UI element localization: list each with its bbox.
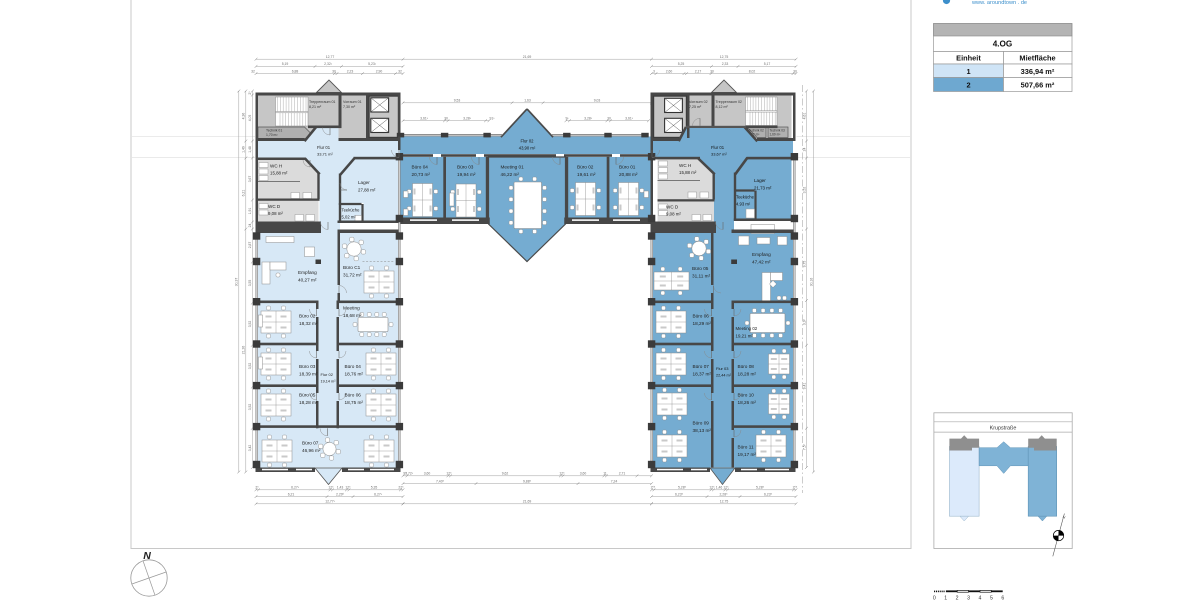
- svg-text:336,94 m²: 336,94 m²: [1021, 67, 1055, 76]
- svg-text:3,42: 3,42: [248, 445, 252, 452]
- svg-text:3,61¹: 3,61¹: [420, 117, 429, 121]
- svg-text:Flur 03: Flur 03: [716, 366, 729, 371]
- svg-text:5: 5: [990, 596, 993, 600]
- svg-text:43,90 m²: 43,90 m²: [519, 146, 536, 151]
- svg-text:2⁰⁵: 2⁰⁵: [793, 486, 798, 490]
- svg-text:4,05: 4,05: [248, 115, 252, 122]
- svg-text:2,28⁵: 2,28⁵: [719, 492, 728, 496]
- svg-text:20,88 m²: 20,88 m²: [619, 172, 638, 177]
- svg-text:12⁵: 12⁵: [345, 486, 351, 490]
- svg-text:5,23¹: 5,23¹: [368, 62, 377, 66]
- svg-text:4.OG: 4.OG: [993, 40, 1013, 49]
- svg-text:18,26 m²: 18,26 m²: [738, 400, 757, 405]
- svg-text:5,25: 5,25: [678, 62, 685, 66]
- svg-text:7,40⁵: 7,40⁵: [436, 479, 445, 483]
- svg-text:Flur 02: Flur 02: [520, 139, 534, 144]
- svg-text:30: 30: [607, 117, 611, 121]
- svg-text:30: 30: [332, 69, 336, 73]
- svg-text:3: 3: [653, 69, 655, 73]
- svg-text:21,73 m²: 21,73 m²: [754, 186, 772, 191]
- svg-text:9,03: 9,03: [594, 99, 601, 103]
- svg-text:33,67 m²: 33,67 m²: [711, 152, 727, 157]
- svg-text:18,39 m²: 18,39 m²: [299, 372, 318, 377]
- svg-text:38,13 m²: 38,13 m²: [693, 428, 712, 433]
- svg-text:2,90: 2,90: [376, 69, 383, 73]
- svg-text:WC H: WC H: [679, 163, 691, 168]
- svg-text:2⁵: 2⁵: [248, 91, 252, 95]
- svg-text:9,62: 9,62: [502, 472, 509, 476]
- svg-text:4: 4: [979, 596, 982, 600]
- svg-text:3,52: 3,52: [248, 363, 252, 370]
- svg-text:21,69: 21,69: [523, 55, 532, 59]
- svg-text:Büro 07: Büro 07: [693, 364, 710, 369]
- svg-text:6,27¹: 6,27¹: [291, 486, 300, 490]
- svg-text:3,67: 3,67: [248, 176, 252, 183]
- svg-text:6,88: 6,88: [292, 69, 299, 73]
- svg-text:46,96 m²: 46,96 m²: [302, 448, 321, 453]
- svg-text:30,37: 30,37: [235, 278, 239, 287]
- svg-text:5,02 m²: 5,02 m²: [342, 215, 357, 220]
- svg-text:3,60: 3,60: [424, 472, 431, 476]
- svg-text:19,14 m²: 19,14 m²: [321, 380, 337, 384]
- svg-text:32: 32: [251, 69, 255, 73]
- svg-text:5,19: 5,19: [282, 62, 289, 66]
- svg-text:2,33: 2,33: [722, 62, 729, 66]
- svg-text:www. aroundtown . de: www. aroundtown . de: [971, 0, 1027, 6]
- svg-text:9,53: 9,53: [454, 99, 461, 103]
- svg-text:47,42 m²: 47,42 m²: [752, 260, 771, 265]
- svg-text:19,21 m²: 19,21 m²: [736, 334, 754, 339]
- svg-text:33,71 m²: 33,71 m²: [317, 152, 333, 157]
- svg-text:2⁵: 2⁵: [255, 486, 259, 490]
- svg-text:40,27 m²: 40,27 m²: [298, 278, 317, 283]
- svg-text:22,44 m²: 22,44 m²: [716, 374, 732, 378]
- svg-text:12⁵: 12⁵: [559, 472, 565, 476]
- svg-text:12,75: 12,75: [720, 500, 729, 504]
- svg-text:22⁵: 22⁵: [398, 486, 404, 490]
- svg-text:Büro 11: Büro 11: [738, 445, 754, 450]
- svg-text:18,28 m²: 18,28 m²: [299, 400, 318, 405]
- svg-text:2,29⁰: 2,29⁰: [336, 492, 345, 496]
- svg-text:20,73 m²: 20,73 m²: [412, 172, 431, 177]
- svg-text:7,5⁵: 7,5⁵: [802, 443, 806, 450]
- svg-text:Empfang: Empfang: [752, 252, 771, 257]
- svg-text:1,46: 1,46: [716, 486, 723, 490]
- svg-text:6,21: 6,21: [242, 190, 246, 197]
- svg-text:507,66 m²: 507,66 m²: [1021, 81, 1055, 90]
- svg-text:18,32 m²: 18,32 m²: [299, 321, 318, 326]
- svg-text:Mietfläche: Mietfläche: [1019, 54, 1055, 63]
- svg-text:4,93 m²: 4,93 m²: [736, 202, 751, 207]
- svg-text:0: 0: [933, 596, 936, 600]
- svg-text:Empfang: Empfang: [298, 270, 317, 275]
- svg-text:1,48: 1,48: [248, 146, 252, 153]
- svg-text:Büro 10: Büro 10: [738, 393, 755, 398]
- svg-text:1: 1: [944, 596, 947, 600]
- svg-text:Treppenraum 02: Treppenraum 02: [716, 100, 742, 104]
- svg-text:Lager: Lager: [358, 180, 370, 185]
- svg-text:Teeküche: Teeküche: [736, 195, 755, 200]
- svg-text:5,28⁵: 5,28⁵: [756, 486, 765, 490]
- svg-text:5,35: 5,35: [371, 486, 378, 490]
- svg-text:12⁵: 12⁵: [723, 486, 729, 490]
- svg-text:24: 24: [802, 148, 806, 152]
- svg-text:15,88 m²: 15,88 m²: [270, 171, 288, 176]
- svg-text:12,77¹: 12,77¹: [325, 500, 335, 504]
- svg-text:30: 30: [444, 117, 448, 121]
- svg-text:Büro 04: Büro 04: [412, 165, 429, 170]
- svg-text:7,25 m²: 7,25 m²: [689, 105, 702, 109]
- svg-text:Büro 05: Büro 05: [692, 266, 709, 271]
- svg-text:WC D: WC D: [666, 205, 679, 210]
- svg-text:5,17: 5,17: [764, 62, 771, 66]
- svg-text:Büro 02: Büro 02: [577, 165, 594, 170]
- svg-text:Meeting: Meeting: [343, 306, 360, 311]
- svg-text:Büro 07: Büro 07: [302, 441, 319, 446]
- svg-text:19,17 m²: 19,17 m²: [738, 452, 757, 457]
- svg-text:3,52: 3,52: [802, 187, 806, 194]
- svg-text:3,28¹: 3,28¹: [463, 117, 472, 121]
- svg-text:12⁵: 12⁵: [709, 486, 715, 490]
- svg-text:1,43: 1,43: [337, 486, 344, 490]
- svg-text:18,76 m²: 18,76 m²: [345, 372, 364, 377]
- svg-text:31,72 m²: 31,72 m²: [343, 273, 362, 278]
- svg-text:WC H: WC H: [270, 164, 282, 169]
- svg-text:4,36: 4,36: [242, 113, 246, 120]
- svg-text:1,69 m²: 1,69 m²: [770, 133, 781, 137]
- svg-text:32: 32: [398, 69, 402, 73]
- svg-text:2,87: 2,87: [248, 242, 252, 249]
- svg-text:1,91: 1,91: [248, 208, 252, 215]
- svg-text:2: 2: [966, 81, 970, 90]
- svg-text:Flur 01: Flur 01: [711, 145, 725, 150]
- svg-text:12,75: 12,75: [720, 55, 729, 59]
- svg-text:27,88 m²: 27,88 m²: [358, 188, 376, 193]
- svg-text:11: 11: [603, 472, 607, 476]
- svg-text:30: 30: [710, 69, 714, 73]
- svg-text:2: 2: [956, 596, 959, 600]
- svg-text:18,28 m²: 18,28 m²: [738, 372, 757, 377]
- svg-text:Büro 08: Büro 08: [738, 364, 755, 369]
- svg-text:9,75: 9,75: [802, 261, 806, 268]
- svg-text:1: 1: [966, 67, 970, 76]
- svg-text:8,12 m²: 8,12 m²: [716, 105, 729, 109]
- svg-text:6,23⁵: 6,23⁵: [764, 492, 773, 496]
- svg-text:9,88⁵: 9,88⁵: [523, 479, 532, 483]
- svg-text:Büro 03: Büro 03: [457, 165, 474, 170]
- svg-text:8,21 m²: 8,21 m²: [309, 105, 322, 109]
- svg-text:12⁵: 12⁵: [446, 472, 452, 476]
- svg-text:3,60: 3,60: [580, 472, 587, 476]
- svg-text:9,08 m²: 9,08 m²: [666, 212, 681, 217]
- svg-text:Büro 05: Büro 05: [299, 393, 316, 398]
- svg-text:31,11 m²: 31,11 m²: [692, 274, 711, 279]
- svg-text:9,08 m²: 9,08 m²: [268, 211, 283, 216]
- svg-text:Büro 02: Büro 02: [299, 314, 316, 319]
- svg-text:Büro 06: Büro 06: [693, 314, 710, 319]
- svg-text:Flur 01: Flur 01: [317, 145, 331, 150]
- svg-text:12⁵: 12⁵: [328, 486, 334, 490]
- svg-text:Büro C1: Büro C1: [343, 265, 361, 270]
- svg-text:2,17: 2,17: [695, 69, 702, 73]
- svg-text:19,94 m²: 19,94 m²: [457, 172, 476, 177]
- svg-text:Büro 09: Büro 09: [693, 421, 710, 426]
- svg-text:Büro 04: Büro 04: [345, 364, 362, 369]
- svg-text:Krupstraße: Krupstraße: [990, 425, 1017, 431]
- svg-text:15,88 m²: 15,88 m²: [679, 170, 697, 175]
- svg-text:9,41: 9,41: [802, 383, 806, 390]
- svg-text:Einheit: Einheit: [956, 54, 981, 63]
- svg-text:3,55: 3,55: [248, 280, 252, 287]
- svg-text:7,30 m²: 7,30 m²: [343, 105, 356, 109]
- svg-text:Büro 01: Büro 01: [619, 165, 636, 170]
- svg-text:18,29 m²: 18,29 m²: [693, 321, 712, 326]
- svg-text:5,28⁵: 5,28⁵: [678, 486, 687, 490]
- svg-text:Meeting 01: Meeting 01: [501, 165, 525, 170]
- svg-text:6,21: 6,21: [288, 492, 295, 496]
- svg-text:2,32¹: 2,32¹: [324, 62, 333, 66]
- svg-text:Büro 03: Büro 03: [299, 364, 316, 369]
- svg-text:6,27¹: 6,27¹: [374, 492, 383, 496]
- svg-text:18,75 m²: 18,75 m²: [345, 400, 364, 405]
- svg-text:1,63: 1,63: [524, 99, 531, 103]
- svg-text:4,61: 4,61: [802, 113, 806, 120]
- svg-text:18,68 m²: 18,68 m²: [343, 313, 362, 318]
- svg-text:91¹: 91¹: [490, 117, 496, 121]
- svg-text:46,22 m²: 46,22 m²: [501, 172, 520, 177]
- svg-text:24: 24: [248, 224, 252, 228]
- svg-text:30,16: 30,16: [809, 278, 813, 287]
- svg-text:6,23⁵: 6,23⁵: [675, 492, 684, 496]
- svg-text:3,52: 3,52: [248, 321, 252, 328]
- svg-text:N: N: [143, 550, 151, 562]
- svg-text:21,69: 21,69: [523, 500, 532, 504]
- svg-text:21,26: 21,26: [242, 346, 246, 355]
- svg-text:WC D: WC D: [268, 204, 281, 209]
- svg-text:2,60: 2,60: [666, 69, 673, 73]
- svg-text:1,49: 1,49: [242, 146, 246, 153]
- svg-text:1,70 m²: 1,70 m²: [266, 133, 278, 137]
- svg-text:Lager: Lager: [754, 178, 766, 183]
- svg-text:2,71: 2,71: [619, 472, 626, 476]
- svg-text:18,37 m²: 18,37 m²: [693, 372, 712, 377]
- svg-text:Büro 06: Büro 06: [345, 393, 362, 398]
- svg-text:6: 6: [1001, 596, 1004, 600]
- svg-text:3,28¹: 3,28¹: [584, 117, 593, 121]
- svg-text:Teeküche: Teeküche: [342, 208, 361, 213]
- svg-text:8,02: 8,02: [749, 69, 756, 73]
- svg-text:2⁰⁵: 2⁰⁵: [651, 486, 656, 490]
- svg-text:3,61¹: 3,61¹: [625, 117, 634, 121]
- svg-text:30: 30: [793, 69, 797, 73]
- svg-text:Vorraum 01: Vorraum 01: [343, 100, 362, 104]
- svg-text:Treppenraum 01: Treppenraum 01: [309, 100, 335, 104]
- svg-text:Meeting 02: Meeting 02: [736, 326, 758, 331]
- svg-text:Vorraum 02: Vorraum 02: [689, 100, 708, 104]
- svg-text:2,23: 2,23: [347, 69, 354, 73]
- svg-text:3: 3: [967, 596, 970, 600]
- svg-text:7,24: 7,24: [611, 479, 618, 483]
- svg-text:Flur 02: Flur 02: [321, 372, 334, 377]
- svg-text:12,77: 12,77: [326, 55, 335, 59]
- svg-text:3,52: 3,52: [248, 404, 252, 411]
- svg-text:3,72¹: 3,72¹: [405, 472, 414, 476]
- svg-text:3,9⁵: 3,9⁵: [802, 318, 806, 325]
- svg-text:19,61 m²: 19,61 m²: [577, 172, 596, 177]
